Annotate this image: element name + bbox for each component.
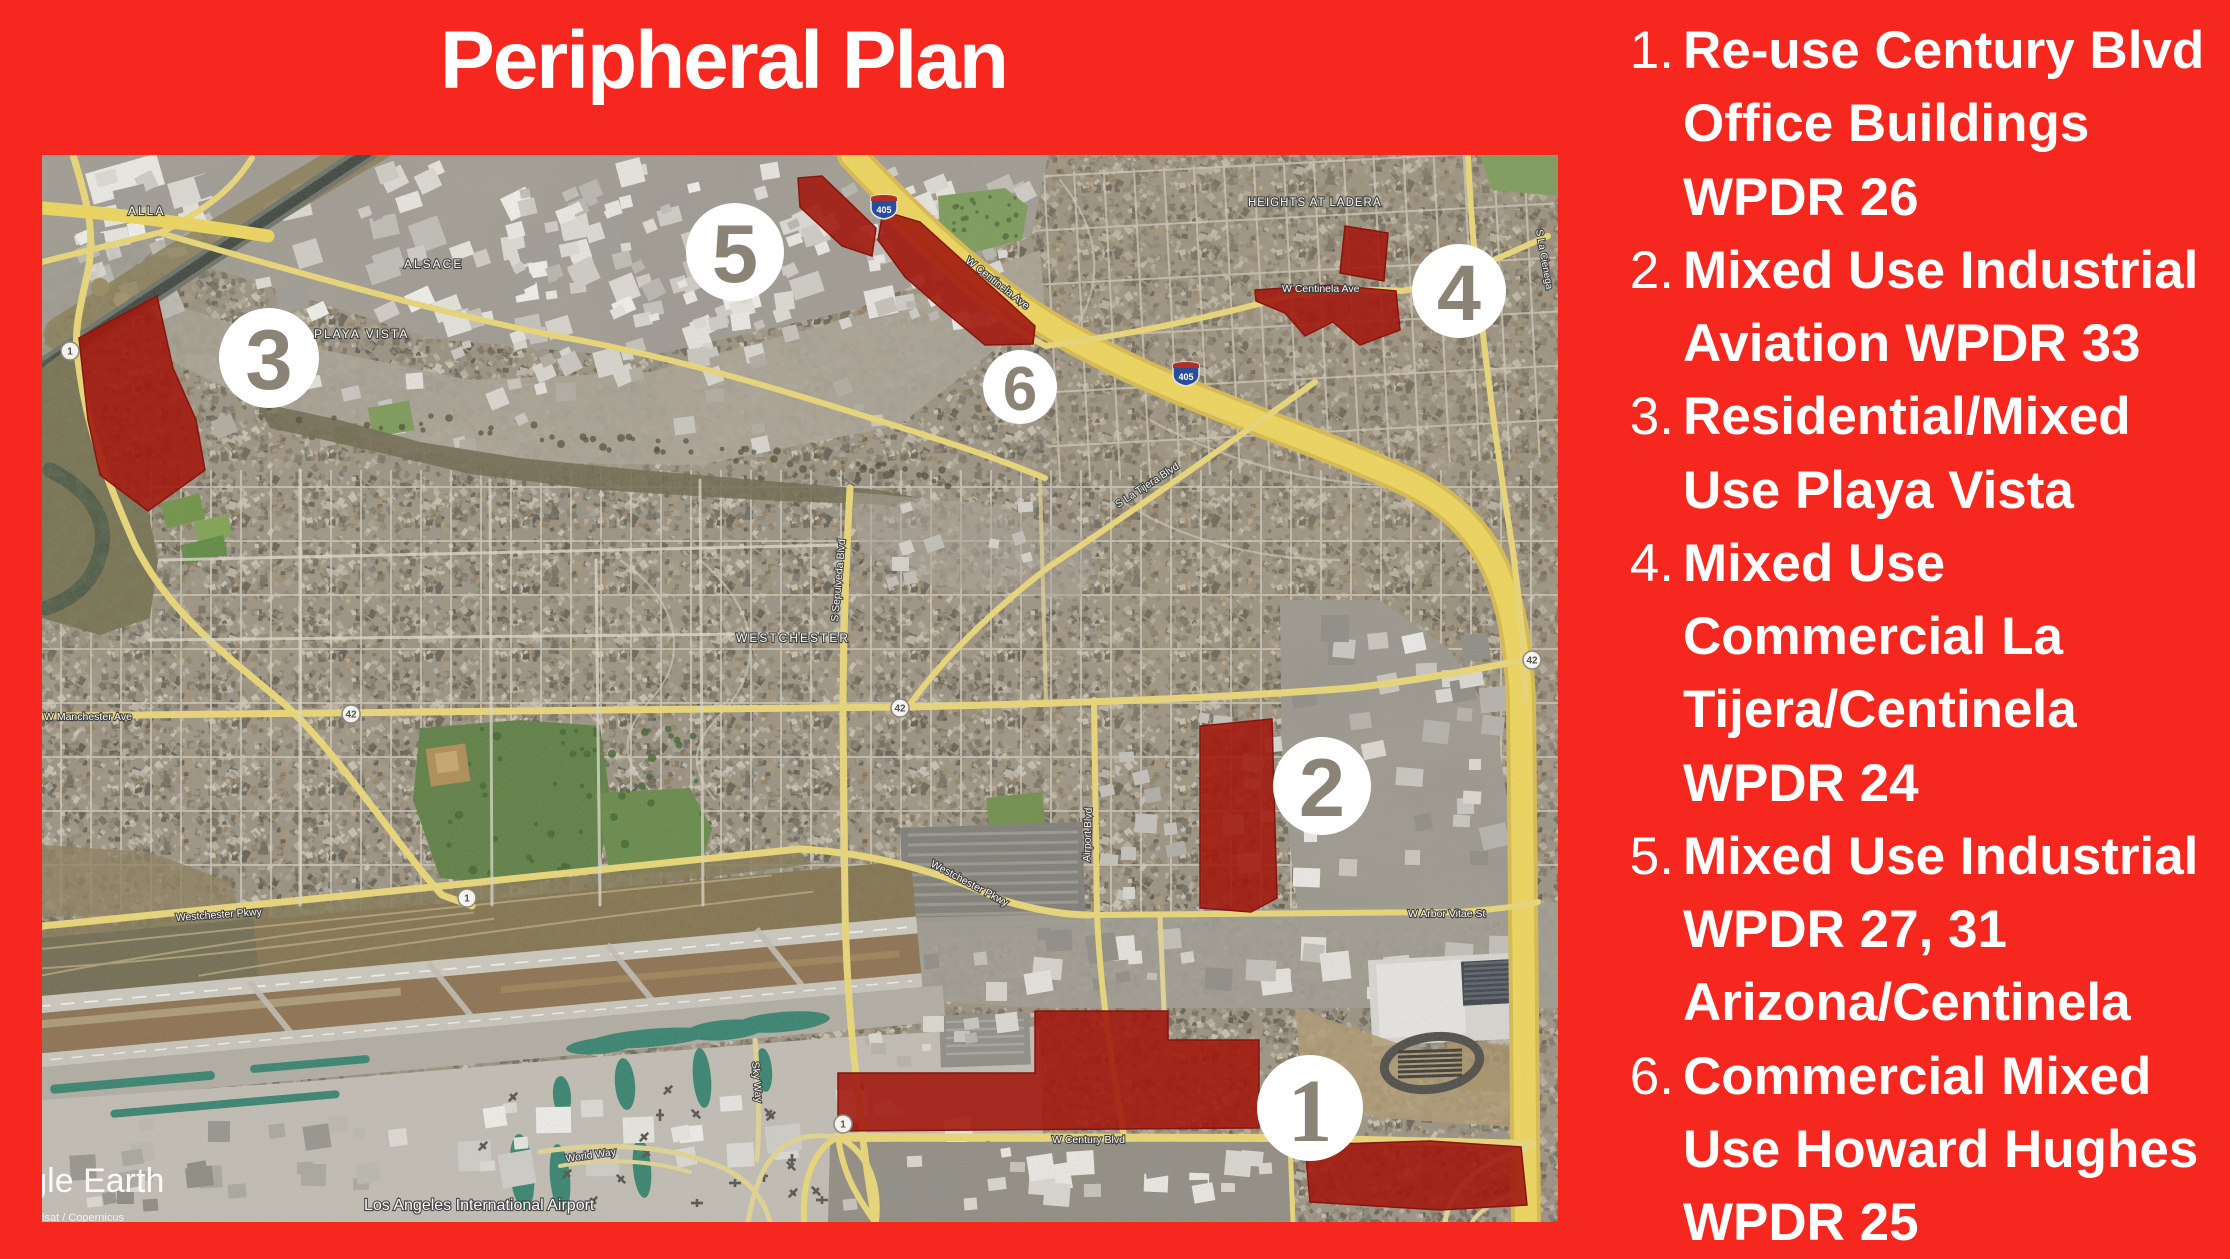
svg-text:4: 4 [1437, 248, 1481, 337]
svg-text:6: 6 [1003, 355, 1037, 424]
svg-text:HEIGHTS AT LADERA: HEIGHTS AT LADERA [1248, 197, 1382, 209]
svg-text:W Century Blvd: W Century Blvd [1052, 1134, 1125, 1146]
svg-text:1: 1 [1288, 1062, 1333, 1161]
svg-text:WESTCHESTER: WESTCHESTER [736, 631, 850, 645]
svg-text:ALLA: ALLA [128, 204, 165, 218]
svg-text:PLAYA VISTA: PLAYA VISTA [314, 327, 409, 341]
svg-text:Los Angeles International Airp: Los Angeles International Airport [364, 1197, 595, 1214]
svg-text:1: 1 [464, 894, 470, 905]
svg-text:5: 5 [712, 207, 758, 300]
svg-text:Landsat / Copernicus: Landsat / Copernicus [42, 1212, 124, 1222]
svg-text:ALSACE: ALSACE [404, 257, 463, 271]
svg-text:42: 42 [894, 704, 906, 715]
svg-text:3: 3 [245, 313, 292, 408]
svg-text:42: 42 [1526, 656, 1538, 667]
svg-text:W Arbor Vitae St: W Arbor Vitae St [1408, 908, 1486, 920]
svg-text:42: 42 [345, 710, 357, 721]
svg-text:405: 405 [1178, 372, 1193, 382]
svg-text:1: 1 [67, 347, 73, 358]
svg-text:Airport Blvd: Airport Blvd [1081, 807, 1095, 862]
svg-text:Google Earth: Google Earth [42, 1162, 164, 1200]
svg-text:405: 405 [876, 205, 891, 215]
svg-text:2: 2 [1299, 741, 1345, 834]
svg-text:W Manchester Ave: W Manchester Ave [44, 711, 132, 723]
svg-text:1: 1 [840, 1120, 846, 1131]
svg-text:W Centinela Ave: W Centinela Ave [1282, 283, 1360, 295]
